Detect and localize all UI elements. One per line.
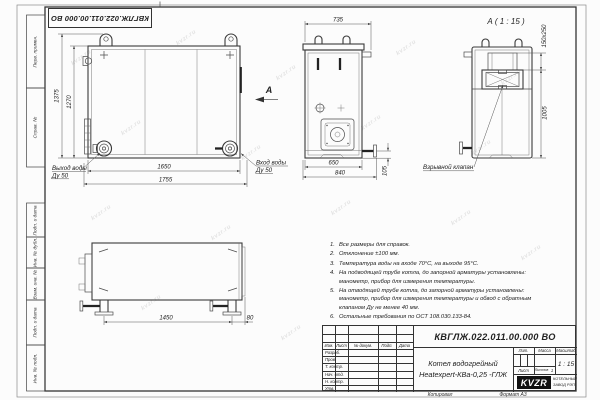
margin-label-podp-data1: Подп. и дата bbox=[27, 203, 46, 237]
furnace-door bbox=[321, 119, 354, 150]
bottom-view: 1450 80 bbox=[79, 243, 254, 325]
note-item: 1.Все размеры для справок. bbox=[330, 241, 535, 249]
margin-label-sprav-no: Справ. № bbox=[27, 88, 46, 167]
boiler-bottom-body bbox=[92, 243, 242, 300]
dim-pipe-height: 105 bbox=[383, 165, 389, 176]
margin-label-perv-primen: Перв. примен. bbox=[27, 15, 46, 88]
product-name: Котел водогрейный Heatexpert-КВа-0,25 -Г… bbox=[413, 347, 513, 392]
kvzr-logo: KVZR bbox=[517, 376, 551, 389]
dim-height-body: 1270 bbox=[67, 95, 73, 109]
title-block: Изм. Лист № докум. Подп. Дата Разраб. Пр… bbox=[322, 325, 576, 391]
dim-width-full: 1755 bbox=[159, 178, 173, 184]
row-utv: Утв. bbox=[323, 385, 348, 392]
row-nachotd: Нач. отд. bbox=[323, 371, 348, 378]
row-prov: Пров. bbox=[323, 356, 348, 363]
inlet-label: Вход воды bbox=[256, 160, 286, 167]
margin-label-podp-data2: Подп. и дата bbox=[27, 300, 46, 345]
note-item: 4.На подводящей трубе котла, до запорной… bbox=[330, 269, 535, 286]
view-letter: А bbox=[265, 85, 273, 95]
drawing-sheet: kvzr.ru kvzr.ru kvzr.ru kvzr.ru kvzr.ru … bbox=[0, 0, 600, 400]
dim-valve-size: 150x250 bbox=[542, 24, 548, 48]
row-nkontr: Н. контр. bbox=[323, 378, 348, 385]
listov-label: Листов bbox=[534, 366, 549, 374]
inlet-dn-label: Ду 50 bbox=[255, 167, 273, 174]
lifting-lug bbox=[225, 34, 237, 46]
outlet-label: Выход воды bbox=[52, 165, 87, 172]
note-item: 2.Отклонение ±100 мм. bbox=[330, 250, 535, 258]
inlet-flange bbox=[223, 141, 238, 156]
explosion-valve-label: Взрывной клапан bbox=[423, 164, 474, 171]
col-data: Дата bbox=[396, 342, 413, 349]
row-tkontr: Т. контр. bbox=[323, 363, 348, 370]
dim-full-depth: 840 bbox=[335, 171, 346, 177]
dim-body-depth: 650 bbox=[328, 161, 339, 167]
lifting-lugs bbox=[315, 36, 350, 44]
front-view: 1375 1270 1650 1755 Выход воды Ду 50 Вхо… bbox=[51, 34, 288, 187]
margin-label-vzam-inv: Взам. инв. № bbox=[27, 268, 46, 300]
section-title: А ( 1 : 15 ) bbox=[486, 17, 525, 26]
listov-value: 1 bbox=[549, 366, 555, 374]
list-label: Лист bbox=[513, 366, 534, 374]
dim-leg-offset: 80 bbox=[247, 316, 254, 322]
margin-label-inv-dubl: Инв. № дубл. bbox=[27, 237, 46, 268]
scale-value: 1 : 15 bbox=[555, 354, 577, 374]
col-izm: Изм. bbox=[323, 342, 335, 349]
section-view-a: А ( 1 : 15 ) Взрывной клапан 150x2 bbox=[423, 17, 549, 171]
view-arrow bbox=[255, 97, 264, 103]
row-razrab: Разраб. bbox=[323, 349, 348, 356]
dim-top-width: 735 bbox=[333, 18, 344, 24]
col-docum: № докум. bbox=[348, 342, 378, 349]
massa-header: Масса bbox=[534, 347, 555, 354]
dim-leg-span: 1450 bbox=[159, 316, 173, 322]
lit-header: Лит. bbox=[513, 347, 534, 354]
boiler-body-side bbox=[305, 50, 362, 158]
dim-section-height: 1005 bbox=[543, 106, 549, 120]
dim-height-full: 1375 bbox=[55, 89, 61, 103]
lifting-lugs bbox=[482, 39, 522, 47]
outlet-flange bbox=[97, 141, 112, 156]
note-item: 6.Остальные требования по ОСТ 108.030.13… bbox=[330, 313, 535, 321]
side-view: 735 650 840 105 bbox=[303, 18, 391, 181]
pipe-stub bbox=[362, 52, 371, 57]
margin-label-inv-podl: Инв. № подл. bbox=[27, 345, 46, 391]
outlet-dn-label: Ду 50 bbox=[51, 173, 69, 180]
format-label: Формат А3 bbox=[483, 392, 543, 398]
company-name: КОТЕЛЬНЫЙ ЗАВОД РЭП bbox=[553, 375, 577, 390]
col-list: Лист bbox=[335, 342, 348, 349]
masshtab-header: Масштаб bbox=[555, 347, 577, 354]
dim-width-body: 1650 bbox=[157, 165, 171, 171]
doc-number: КВГЛЖ.022.011.00.000 ВО bbox=[413, 326, 577, 347]
boiler-body bbox=[88, 46, 240, 158]
doc-number-top: КВГЛЖ.022.011.00.000 ВО bbox=[51, 14, 149, 23]
flue-duct bbox=[488, 53, 517, 70]
note-item: 3.Температура воды на входе 70°С, на вых… bbox=[330, 260, 535, 268]
technical-notes: 1.Все размеры для справок. 2.Отклонение … bbox=[330, 241, 535, 323]
doc-number-top-box: КВГЛЖ.022.011.00.000 ВО bbox=[48, 8, 152, 28]
col-podp: Подп. bbox=[378, 342, 396, 349]
lifting-lug bbox=[100, 34, 112, 46]
note-item: 5.На отводящей трубе котла, до запорной … bbox=[330, 287, 535, 312]
kopiroval-label: Копировал bbox=[410, 392, 470, 398]
